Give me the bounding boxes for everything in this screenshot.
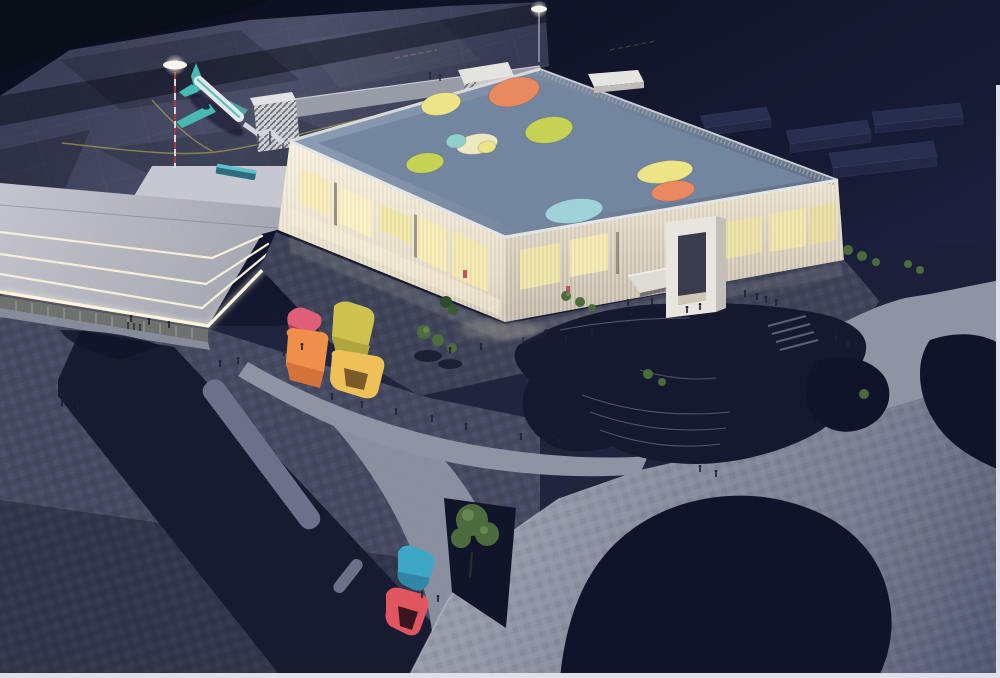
- page-edge-bottom: [0, 673, 1000, 678]
- pole-lamp: [531, 6, 547, 13]
- big-tree: [475, 522, 499, 546]
- big-tree: [451, 528, 471, 548]
- tree: [904, 260, 912, 268]
- red-banner: [463, 270, 467, 278]
- mast-lamp: [163, 61, 187, 70]
- tree: [872, 258, 880, 266]
- page-edge-right: [996, 85, 1000, 678]
- tree-highlight: [566, 292, 570, 296]
- tree: [843, 245, 853, 255]
- facade-slot: [414, 214, 417, 258]
- render-canvas: [0, 0, 1000, 678]
- entrance-portal: [666, 216, 726, 318]
- facade-slot: [334, 182, 337, 226]
- facade-slot: [616, 232, 619, 274]
- tree-highlight: [423, 327, 429, 333]
- tree: [643, 369, 653, 379]
- tree-highlight: [462, 509, 474, 521]
- engine: [202, 104, 210, 109]
- planter-tree: [448, 305, 458, 315]
- tree: [561, 291, 571, 301]
- tree: [857, 251, 867, 261]
- tree: [859, 389, 869, 399]
- tree: [588, 304, 596, 312]
- bush-shadow: [414, 350, 442, 362]
- architectural-render: [0, 0, 1000, 678]
- tree-highlight: [480, 526, 488, 534]
- portal-side: [716, 216, 726, 312]
- tree: [432, 334, 444, 346]
- orange-pavilion: [286, 328, 328, 388]
- tree: [916, 266, 924, 274]
- corner-light-spill: [458, 320, 542, 340]
- tree: [575, 297, 585, 307]
- tree: [447, 343, 457, 353]
- tree: [658, 378, 666, 386]
- bush-shadow: [438, 359, 462, 369]
